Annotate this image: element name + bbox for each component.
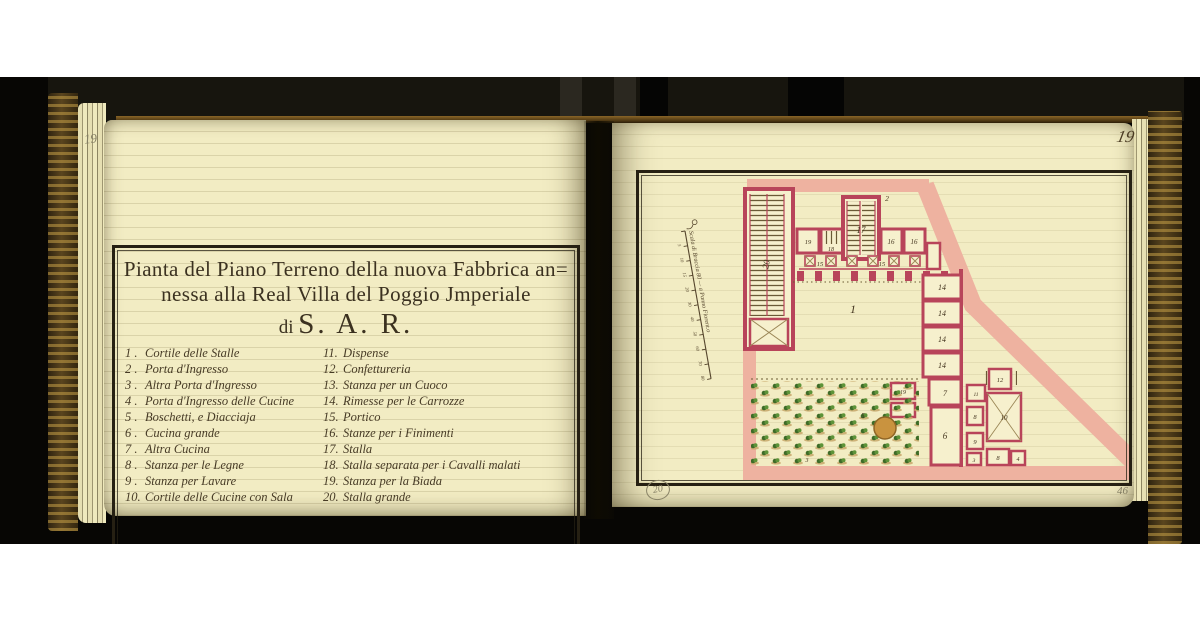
legend-item-18: 18.Stalla separata per i Cavalli malati — [323, 457, 573, 473]
legend-item-13: 13.Stanza per un Cuoco — [323, 377, 573, 393]
room-label-14d: 14 — [938, 361, 946, 370]
room-label-6: 6 — [943, 431, 948, 441]
title-line-3-prefix: di — [279, 317, 294, 338]
title-line-1: Pianta del Piano Terreno della nuova Fab… — [115, 257, 577, 282]
legend-item-5: 5 .Boschetti, e Diacciaja — [125, 409, 315, 425]
legend-item-10: 10.Cortile delle Cucine con Sala — [125, 489, 315, 505]
scanned-page: 19 Pianta del Piano Terreno della nuova … — [0, 0, 1200, 628]
legend-item-3: 3 .Altra Porta d'Ingresso — [125, 377, 315, 393]
scale-tick-20: 20 — [684, 287, 690, 293]
title-line-3-sar: S. A. R. — [298, 308, 413, 340]
book-cover-left — [48, 93, 78, 531]
page-title: Pianta del Piano Terreno della nuova Fab… — [115, 257, 577, 341]
room-label-14c: 14 — [938, 335, 946, 344]
legend-column-right: 11.Dispense 12.Confettureria 13.Stanza p… — [323, 345, 573, 505]
book-photograph: 19 Pianta del Piano Terreno della nuova … — [0, 77, 1200, 544]
legend-item-20: 20.Stalla grande — [323, 489, 573, 505]
scale-tick-40: 40 — [690, 316, 696, 322]
room-label-15a: 15 — [817, 261, 824, 268]
floor-plan: 20 19 18 17 16 — [639, 173, 1129, 483]
legend-item-1: 1 .Cortile delle Stalle — [125, 345, 315, 361]
binding-shadow — [640, 77, 668, 120]
book-gutter — [584, 121, 614, 519]
room-label-3b: 3 — [972, 458, 976, 464]
legend-item-4: 4 .Porta d'Ingresso delle Cucine — [125, 393, 315, 409]
legend-item-7: 7 .Altra Cucina — [125, 441, 315, 457]
scale-tick-15: 15 — [682, 272, 688, 278]
legend-item-16: 16.Stanze per i Finimenti — [323, 425, 573, 441]
plan-frame: 20 19 18 17 16 — [636, 170, 1132, 486]
room-label-14a: 14 — [938, 283, 946, 292]
scale-tick-70: 70 — [697, 361, 703, 367]
legend-item-14: 14.Rimesse per le Carrozze — [323, 393, 573, 409]
bookmark-ribbon — [614, 77, 636, 120]
legend-item-11: 11.Dispense — [323, 345, 573, 361]
folio-number-left: 19 — [83, 130, 98, 147]
legend-item-12: 12.Confettureria — [323, 361, 573, 377]
room-label-15b: 15 — [879, 261, 886, 268]
legend-item-19: 19.Stanza per la Biada — [323, 473, 573, 489]
room-label-14b: 14 — [938, 309, 946, 318]
stable-grande-20: 20 — [745, 189, 793, 349]
book-cover-right — [1148, 111, 1182, 544]
title-line-3: di S. A. R. — [115, 308, 577, 341]
page-stack-left — [78, 103, 106, 523]
scale-tick-80: 80 — [700, 375, 706, 381]
scale-tick-5: 5 — [677, 244, 682, 248]
right-page: 19 — [612, 123, 1134, 507]
room-label-1: 1 — [850, 302, 856, 316]
pencil-number-46: 46 — [1117, 485, 1128, 497]
legend-column-left: 1 .Cortile delle Stalle 2 .Porta d'Ingre… — [125, 345, 315, 505]
room-label-18: 18 — [828, 247, 834, 253]
folio-number-right: 19 — [1115, 127, 1136, 147]
legend-item-9: 9 .Stanza per Lavare — [125, 473, 315, 489]
garden-boschetti: 5 3 — [751, 379, 919, 465]
legend-item-8: 8 .Stanza per le Legne — [125, 457, 315, 473]
room-label-16a: 16 — [888, 238, 896, 246]
legend-item-6: 6 .Cucina grande — [125, 425, 315, 441]
legend-item-17: 17.Stalla — [323, 441, 573, 457]
binding-shadow — [788, 77, 844, 120]
title-line-2: nessa alla Real Villa del Poggio Jmperia… — [115, 282, 577, 307]
icehouse-diacciaja — [874, 417, 896, 439]
room-label-11: 11 — [973, 392, 978, 398]
scale-bar: Scala di Braccia 80 — a Panno Fiorent.o … — [673, 219, 724, 381]
scale-tick-50: 50 — [692, 331, 698, 337]
room-label-4: 4 — [1017, 456, 1020, 463]
room-label-16b: 16 — [911, 238, 919, 246]
room-label-12: 12 — [997, 377, 1004, 384]
scale-tick-60: 60 — [695, 346, 701, 352]
bookmark-ribbon — [560, 77, 582, 120]
room-label-3: 3 — [805, 458, 809, 464]
scale-tick-10: 10 — [679, 257, 685, 263]
room-label-17: 17 — [857, 225, 867, 235]
room-label-5: 5 — [861, 412, 865, 420]
room-label-10: 10 — [1001, 414, 1009, 422]
legend-frame: Pianta del Piano Terreno della nuova Fab… — [112, 245, 580, 544]
room-label-2: 2 — [885, 194, 889, 203]
scale-tick-30: 30 — [687, 302, 693, 308]
legend-item-2: 2 .Porta d'Ingresso — [125, 361, 315, 377]
legend-item-15: 15.Portico — [323, 409, 573, 425]
page-stack-right — [1132, 119, 1148, 501]
room-label-19-top: 19 — [805, 239, 812, 246]
left-page: Pianta del Piano Terreno della nuova Fab… — [104, 120, 586, 516]
